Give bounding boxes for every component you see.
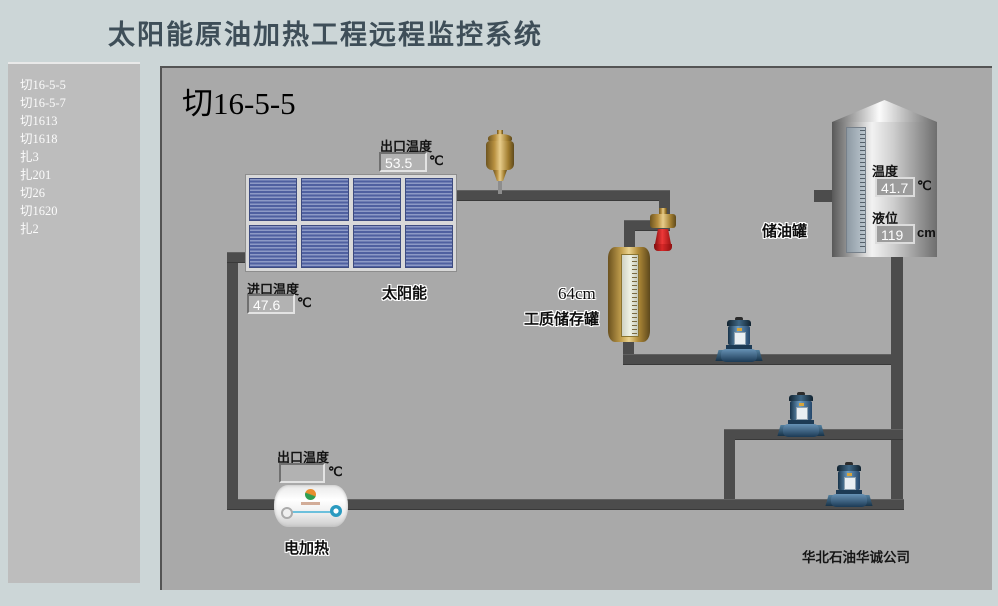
sidebar-item-zha2[interactable]: 扎2 [8, 220, 140, 238]
pipe-right-vertical [891, 253, 903, 510]
pump-nameplate [844, 477, 856, 490]
pump-volute [831, 494, 867, 507]
sidebar-item-qie16-5-5[interactable]: 切16-5-5 [8, 76, 140, 94]
sight-glass [621, 254, 639, 337]
medium-tank-label: 工质储存罐 [524, 308, 599, 329]
solar-cell [249, 225, 297, 268]
pipe-mid-vertical [724, 429, 735, 510]
heater-outlet-temp-value [279, 463, 325, 483]
oil-tank-temp-value: 41.7 [875, 177, 915, 197]
header-title: 太阳能原油加热工程远程监控系统 [108, 13, 543, 52]
valve-taper [493, 170, 507, 181]
solar-cell [353, 225, 401, 268]
pump-icon-3 [829, 462, 869, 510]
page-title: 切16-5-5 [182, 78, 296, 123]
solar-cell [249, 178, 297, 221]
pipe-left-vertical [227, 252, 238, 510]
oil-tank-level-value: 119 [875, 224, 915, 244]
sidebar-item-qie26[interactable]: 切26 [8, 184, 140, 202]
pump-nameplate [734, 332, 746, 345]
pipe-oil-tank-side-stub [814, 190, 834, 202]
heater-dial-right [330, 505, 342, 517]
oil-tank-label: 储油罐 [762, 220, 807, 241]
oil-tank-level-unit: cm [917, 225, 936, 240]
medium-tank-level: 64cm [558, 284, 596, 304]
heater-dial-left [281, 507, 293, 519]
solar-cell [353, 178, 401, 221]
scada-page: 太阳能原油加热工程远程监控系统 切16-5-5 切16-5-7 切1613 切1… [0, 0, 998, 606]
air-release-valve-icon [484, 130, 516, 194]
pump-icon-2 [781, 392, 821, 440]
pump-badge [799, 403, 804, 406]
sidebar: 切16-5-5 切16-5-7 切1613 切1618 扎3 扎201 切26 … [8, 62, 140, 583]
sidebar-item-zha3[interactable]: 扎3 [8, 148, 140, 166]
solar-outlet-temp-value: 53.5 [379, 152, 427, 172]
pump-nameplate [796, 407, 808, 420]
mimic-panel: 切16-5-5 太阳能 出口温度 53.5 ℃ 进 [160, 66, 992, 590]
solar-inlet-temp-unit: ℃ [297, 295, 312, 311]
oil-tank-level-gauge [846, 127, 866, 253]
pump-badge [737, 328, 742, 331]
valve-red-handle [655, 229, 671, 244]
sidebar-item-zha201[interactable]: 扎201 [8, 166, 140, 184]
pump-icon-1 [719, 317, 759, 365]
pipe-horizontal-1 [623, 354, 903, 365]
valve-red-band [654, 244, 672, 251]
valve-body [486, 141, 514, 170]
heater-logo-icon [305, 489, 316, 500]
solar-label: 太阳能 [382, 282, 427, 303]
valve-body [650, 214, 676, 228]
sidebar-item-qie1620[interactable]: 切1620 [8, 202, 140, 220]
sidebar-item-qie1618[interactable]: 切1618 [8, 130, 140, 148]
heater-logo-text [301, 502, 320, 505]
heater-outlet-temp-unit: ℃ [328, 464, 343, 480]
sidebar-item-qie1613[interactable]: 切1613 [8, 112, 140, 130]
pump-badge [847, 473, 852, 476]
oil-tank-gauge-scale [860, 130, 865, 249]
heater-label: 电加热 [284, 537, 329, 558]
electric-heater-icon [274, 485, 348, 527]
oil-tank-temp-unit: ℃ [917, 178, 932, 194]
company-name: 华北石油华诚公司 [802, 546, 910, 566]
sight-glass-scale [632, 257, 637, 334]
solar-cell [301, 225, 349, 268]
solar-cell [405, 178, 453, 221]
solar-cell [405, 225, 453, 268]
solar-inlet-temp-value: 47.6 [247, 294, 295, 314]
pump-volute [721, 349, 757, 362]
solar-cell [301, 178, 349, 221]
oil-tank-roof [832, 100, 937, 122]
valve-stem [498, 181, 502, 194]
medium-tank-icon [608, 247, 650, 342]
solar-outlet-temp-unit: ℃ [429, 153, 444, 169]
sidebar-item-qie16-5-7[interactable]: 切16-5-7 [8, 94, 140, 112]
pump-volute [783, 424, 819, 437]
solar-collector-icon [245, 174, 457, 272]
drain-valve-icon [650, 208, 676, 254]
